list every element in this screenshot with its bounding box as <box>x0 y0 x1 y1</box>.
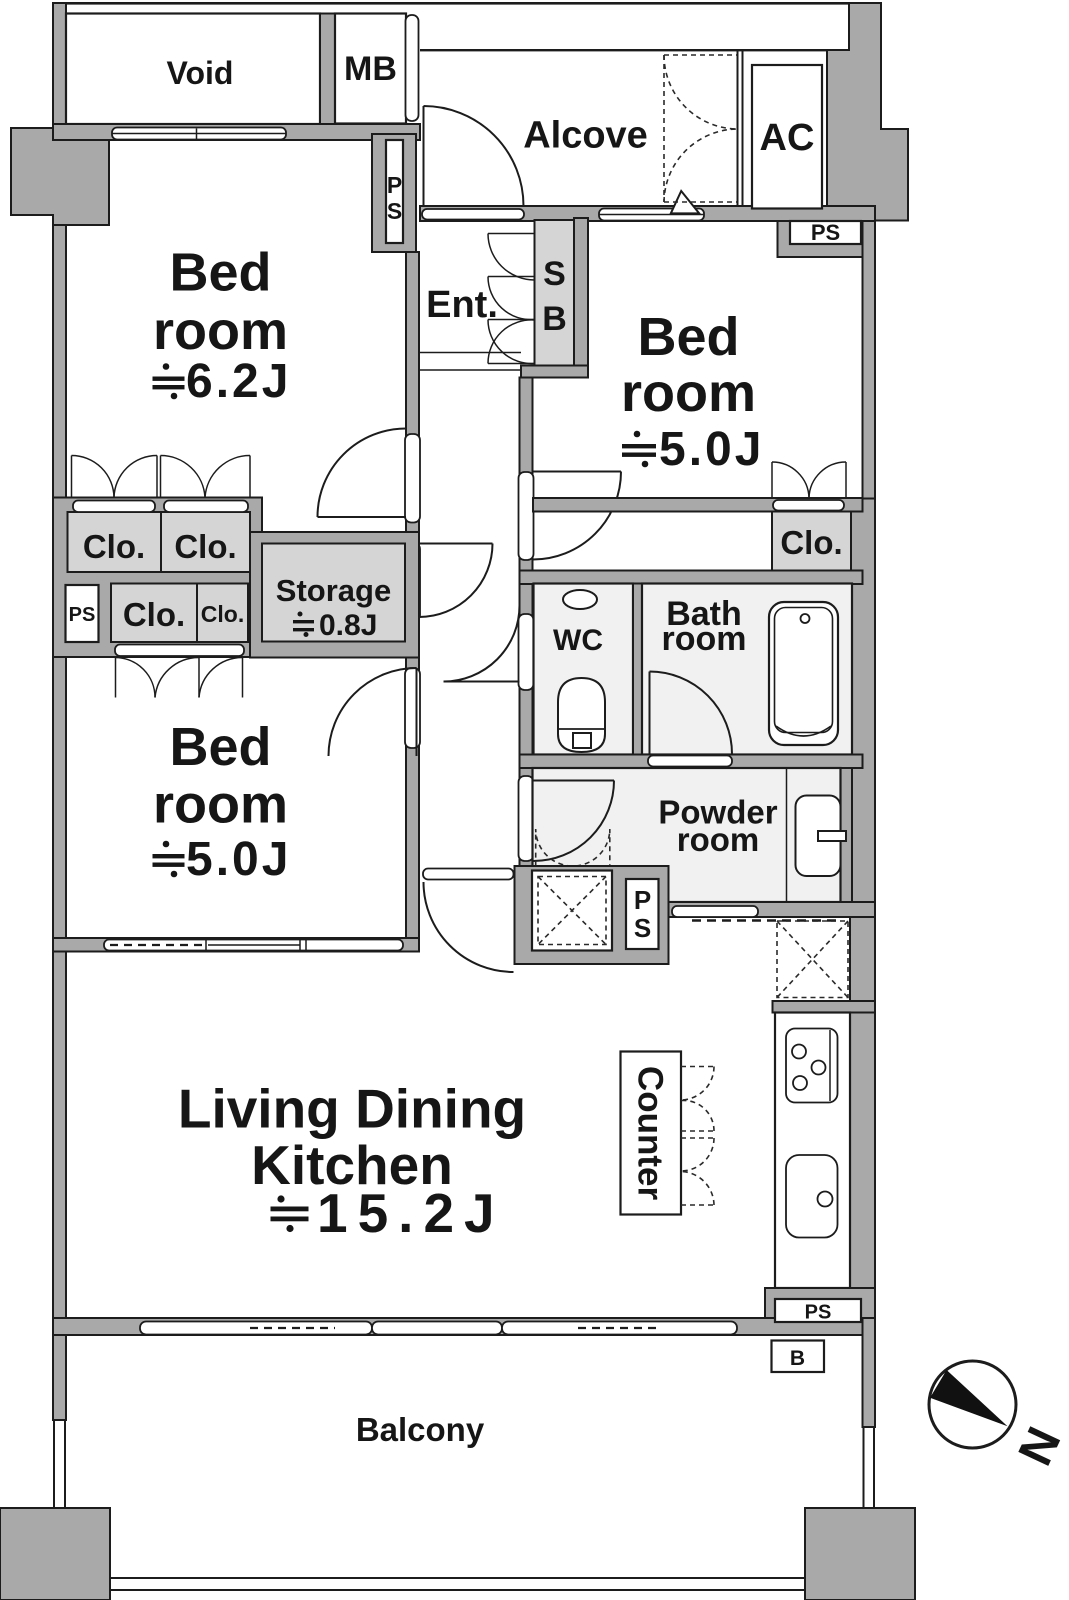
svg-text:room: room <box>153 775 288 835</box>
svg-text:Clo.: Clo. <box>123 596 185 633</box>
svg-text:15.2J: 15.2J <box>317 1182 505 1244</box>
svg-text:Living Dining: Living Dining <box>178 1078 526 1140</box>
svg-text:6.2J: 6.2J <box>186 355 291 408</box>
svg-text:Storage: Storage <box>276 573 391 608</box>
svg-text:S: S <box>387 198 402 224</box>
svg-text:P: P <box>387 172 402 198</box>
svg-text:0.8J: 0.8J <box>319 609 377 642</box>
svg-text:Clo.: Clo. <box>780 524 842 561</box>
svg-text:Ent.: Ent. <box>426 284 498 326</box>
svg-text:Clo.: Clo. <box>83 528 145 565</box>
svg-text:Bed: Bed <box>169 717 271 777</box>
svg-text:MB: MB <box>344 50 397 88</box>
svg-text:Bed: Bed <box>637 307 739 367</box>
svg-text:room: room <box>621 363 756 423</box>
svg-text:AC: AC <box>760 117 815 159</box>
svg-text:Bed: Bed <box>169 243 271 303</box>
svg-text:PS: PS <box>811 220 840 245</box>
svg-text:5.0J: 5.0J <box>659 423 764 476</box>
svg-text:room: room <box>153 301 288 361</box>
svg-text:WC: WC <box>553 624 603 657</box>
svg-text:PS: PS <box>805 1302 832 1324</box>
svg-text:Clo.: Clo. <box>174 528 236 565</box>
svg-text:Counter: Counter <box>631 1066 670 1201</box>
svg-text:P: P <box>634 885 651 915</box>
svg-text:S: S <box>543 255 566 293</box>
svg-text:Clo.: Clo. <box>201 601 244 627</box>
svg-text:Balcony: Balcony <box>356 1411 485 1448</box>
svg-text:Void: Void <box>167 55 234 91</box>
svg-text:room: room <box>662 620 747 658</box>
svg-text:5.0J: 5.0J <box>186 833 291 886</box>
svg-text:PS: PS <box>69 604 96 626</box>
svg-text:S: S <box>634 913 651 943</box>
svg-text:B: B <box>542 300 567 338</box>
svg-text:Alcove: Alcove <box>523 115 648 157</box>
svg-text:room: room <box>677 821 760 858</box>
svg-text:B: B <box>790 1347 805 1370</box>
